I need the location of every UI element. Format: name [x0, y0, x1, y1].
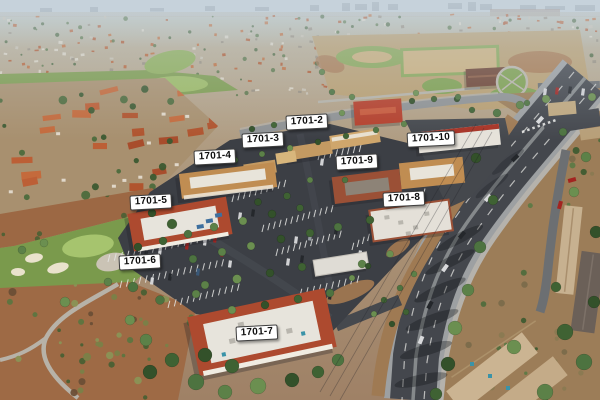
aerial-scene: [0, 0, 600, 400]
aerial-photo: 1701-21701-31701-41701-51701-61701-71701…: [0, 0, 600, 400]
atmospheric-haze: [0, 0, 600, 400]
